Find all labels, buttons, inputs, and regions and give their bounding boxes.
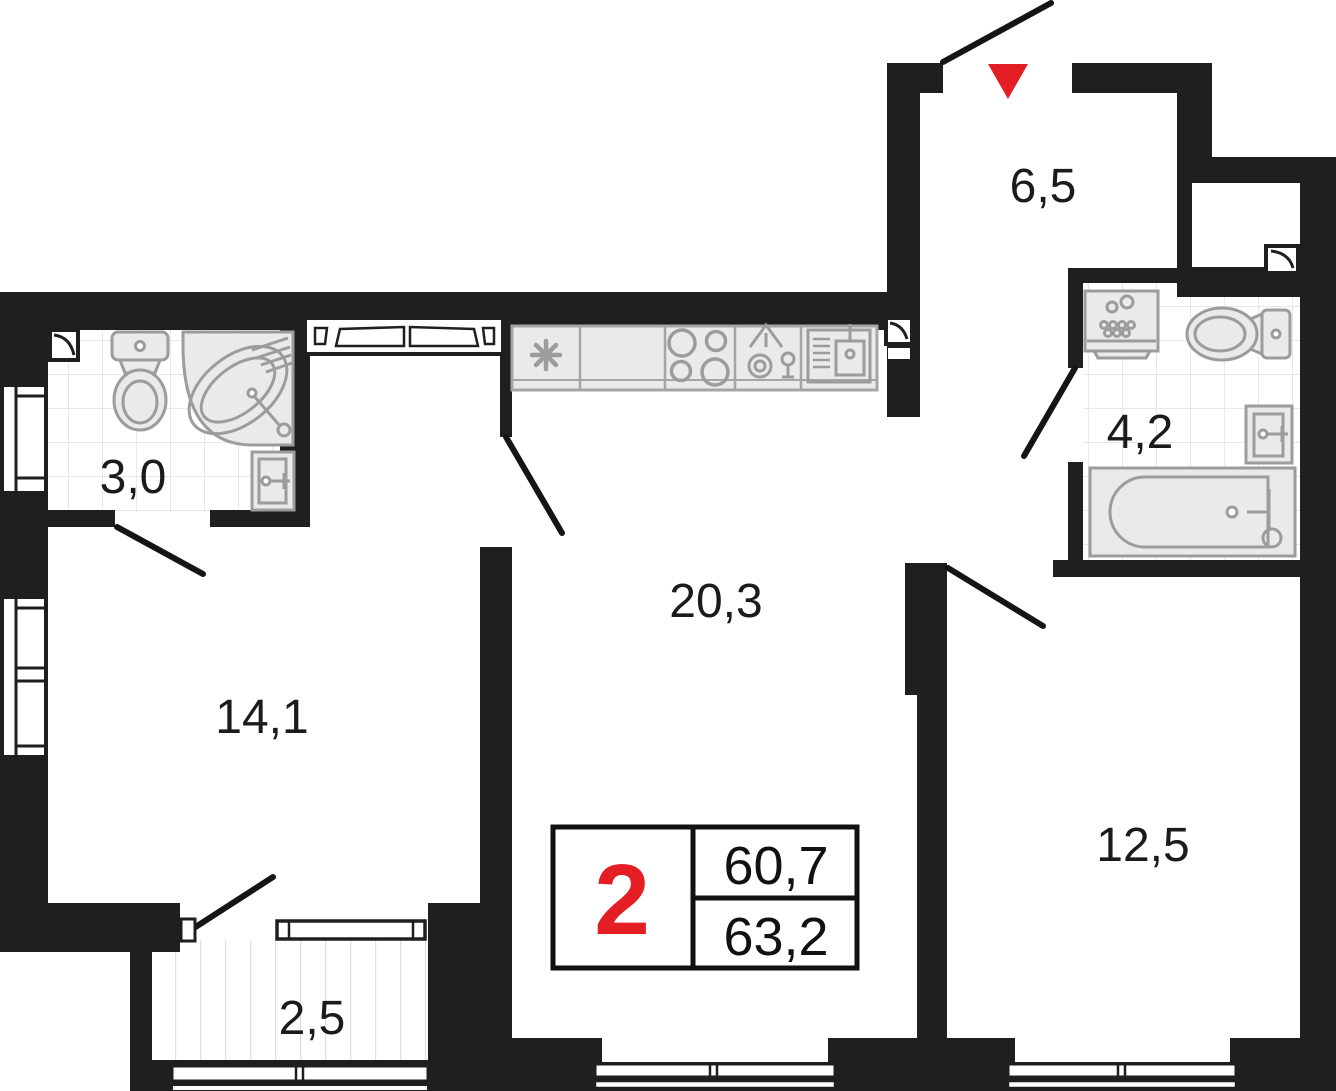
door-swing — [943, 3, 1051, 62]
bathroom-small-area-label: 3,0 — [100, 451, 167, 504]
hallway-area-label: 6,5 — [1010, 160, 1077, 213]
door-swing — [117, 527, 203, 574]
door-swing — [1024, 368, 1075, 456]
ventilation-shaft-icon — [886, 318, 912, 359]
wall — [1053, 560, 1300, 577]
toilet-icon — [1187, 308, 1290, 360]
wall — [1300, 157, 1336, 1091]
balcony-door-frame — [181, 919, 195, 941]
ventilation-shaft-icon — [50, 330, 78, 360]
wall — [1068, 462, 1083, 560]
fridge-icon — [532, 341, 560, 369]
window — [595, 1038, 835, 1088]
legend: 2 60,7 63,2 — [553, 827, 857, 968]
washing-machine-icon — [1085, 291, 1158, 358]
legend-rooms-count: 2 — [594, 844, 650, 956]
window — [1008, 1038, 1236, 1088]
wall — [1072, 63, 1212, 93]
door-swing — [948, 568, 1043, 626]
wall — [480, 547, 512, 903]
window — [2, 597, 46, 757]
kitchen-living-area-label: 20,3 — [669, 575, 762, 628]
door-swing — [506, 437, 562, 533]
entrance-arrow-icon — [988, 64, 1028, 99]
window — [305, 318, 503, 354]
door-swing — [194, 877, 273, 928]
window — [172, 1066, 428, 1091]
wall — [1177, 183, 1192, 267]
sink-icon — [252, 452, 294, 510]
kitchen-counter — [512, 324, 877, 390]
balcony-area-label: 2,5 — [279, 992, 346, 1045]
room-left-area-label: 14,1 — [215, 691, 308, 744]
wall — [0, 903, 180, 952]
wall — [48, 510, 115, 527]
wall — [905, 563, 947, 695]
bathtub-icon — [1090, 468, 1295, 556]
ventilation-shaft-icon — [1266, 246, 1298, 273]
window — [277, 921, 425, 939]
wall — [887, 63, 920, 417]
sink-icon — [1246, 406, 1292, 463]
bathroom-large-area-label: 4,2 — [1107, 406, 1174, 459]
window — [2, 385, 46, 493]
wall — [1068, 268, 1083, 368]
legend-total-area: 63,2 — [723, 907, 828, 967]
legend-living-area: 60,7 — [723, 836, 828, 896]
room-right-area-label: 12,5 — [1096, 819, 1189, 872]
wall — [210, 510, 310, 527]
toilet-icon — [112, 332, 168, 430]
wall — [887, 63, 943, 93]
floor-plan: 6,5 3,0 4,2 20,3 14,1 12,5 2,5 2 60,7 63… — [0, 0, 1336, 1091]
floor-plan-drawing: 6,5 3,0 4,2 20,3 14,1 12,5 2,5 2 60,7 63… — [0, 0, 1336, 1091]
